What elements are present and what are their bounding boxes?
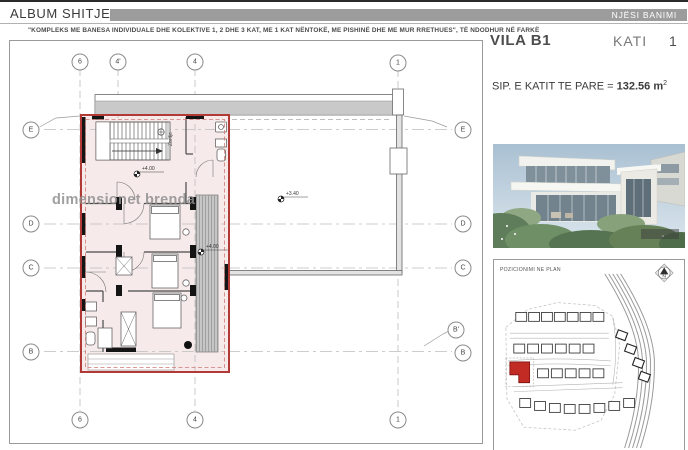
unit-name: VILA B1 <box>490 32 551 49</box>
header-bar: NJËSI BANIMI <box>110 9 687 21</box>
grid-bubble-right-Bp: B' <box>448 322 465 339</box>
grid-bubble-right-E: E <box>455 122 472 139</box>
area-exponent: 2 <box>663 80 667 87</box>
site-plan: POZICIONIMI NE PLAN N <box>494 260 684 450</box>
main-road <box>605 274 655 448</box>
header-divider <box>0 23 688 24</box>
villa-photo <box>493 144 685 248</box>
north-arrow-icon: N <box>655 264 673 282</box>
grid-bubble-left-B: B <box>23 344 40 361</box>
grid-bubble-right-C: C <box>455 260 472 277</box>
staircase <box>96 122 170 160</box>
grid-bubble-bottom-1: 1 <box>390 412 407 429</box>
grid-bubble-top-4p: 4' <box>110 54 127 71</box>
site-plan-title: POZICIONIMI NE PLAN <box>500 267 561 273</box>
photo-watermark <box>641 229 679 239</box>
site-houses <box>514 312 651 413</box>
area-label: SIP. E KATIT TE PARE = <box>492 81 617 93</box>
stair-direction-label: Zbritje <box>168 132 174 146</box>
sheet: ALBUM SHITJESH NJËSI BANIMI "KOMPLEKS ME… <box>0 0 688 450</box>
elevation-terrace: +3.40 <box>286 191 299 197</box>
area-line: SIP. E KATIT TE PARE = 132.56 m2 <box>492 80 667 93</box>
elevation-balcony: +4.00 <box>206 244 219 250</box>
deck-strip <box>196 195 218 352</box>
grid-bubble-bottom-4: 4 <box>187 412 204 429</box>
column <box>184 341 192 349</box>
grid-bubble-top-6: 6 <box>72 54 89 71</box>
grid-bubble-right-B: B <box>455 345 472 362</box>
unit-type-badge: NJËSI BANIMI <box>612 10 687 20</box>
grid-bubble-right-D: D <box>455 216 472 233</box>
floor-value: 1 <box>669 33 677 49</box>
grid-bubble-left-E: E <box>23 122 40 139</box>
area-value: 132.56 m <box>617 81 663 93</box>
site-houses-east <box>616 330 651 382</box>
site-plan-box: POZICIONIMI NE PLAN N <box>493 259 685 450</box>
grid-bubble-bottom-6: 6 <box>72 412 89 429</box>
floor-label: KATI <box>613 33 647 49</box>
project-description: "KOMPLEKS ME BANESA INDIVIDUALE DHE KOLE… <box>28 27 484 34</box>
grid-bubble-top-4: 4 <box>187 54 204 71</box>
north-label: N <box>662 273 666 279</box>
watermark-text: dimensionet brenda <box>52 192 195 208</box>
elevation-stair: +4.00 <box>142 166 155 172</box>
highlighted-lot <box>506 358 534 387</box>
grid-bubble-top-1: 1 <box>390 55 407 72</box>
floor-plan: Zbritje <box>9 40 483 444</box>
grid-bubble-left-C: C <box>23 260 40 277</box>
grid-bubble-left-D: D <box>23 216 40 233</box>
